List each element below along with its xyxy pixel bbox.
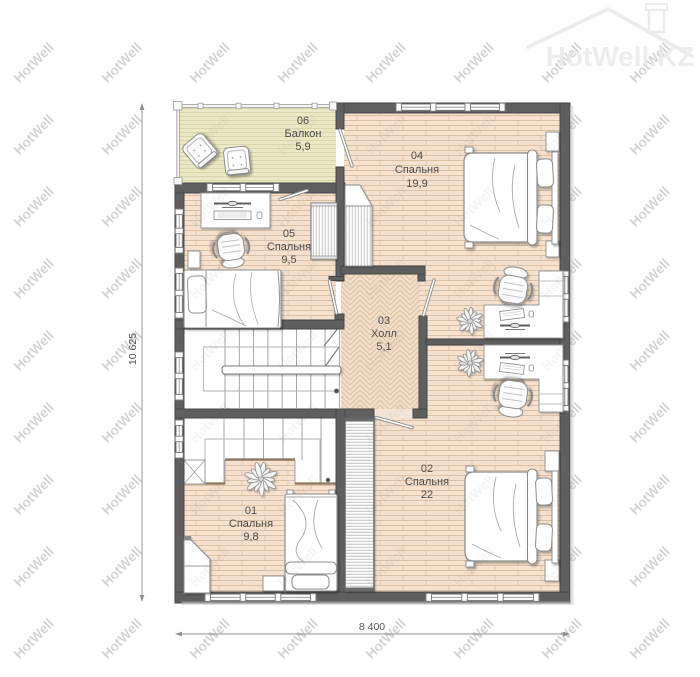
svg-text:9,8: 9,8 [243, 531, 258, 543]
svg-text:22: 22 [421, 489, 433, 501]
svg-text:HotWell: HotWell [11, 472, 57, 518]
svg-text:01: 01 [245, 505, 257, 517]
svg-text:HotWell: HotWell [275, 40, 321, 86]
svg-text:HotWell: HotWell [187, 40, 233, 86]
svg-text:HotWell: HotWell [11, 328, 57, 374]
svg-text:HotWell: HotWell [627, 112, 673, 158]
svg-text:HotWell: HotWell [627, 472, 673, 518]
svg-text:03: 03 [378, 315, 390, 327]
svg-text:HotWell: HotWell [627, 328, 673, 374]
svg-text:HotWell: HotWell [11, 40, 57, 86]
svg-text:HotWell: HotWell [627, 256, 673, 302]
svg-text:HotWell: HotWell [187, 616, 233, 662]
svg-text:HotWell: HotWell [11, 184, 57, 230]
svg-text:HotWell: HotWell [451, 40, 497, 86]
svg-text:HotWell: HotWell [627, 544, 673, 590]
svg-text:9,5: 9,5 [281, 254, 296, 266]
svg-text:Спальня: Спальня [229, 518, 273, 530]
svg-text:HotWell: HotWell [99, 472, 145, 518]
svg-text:HotWell: HotWell [627, 616, 673, 662]
svg-text:HotWell: HotWell [99, 40, 145, 86]
svg-text:HotWell: HotWell [11, 400, 57, 446]
svg-text:HotWell: HotWell [627, 400, 673, 446]
svg-text:Спальня: Спальня [267, 241, 311, 253]
svg-text:HotWell: HotWell [363, 40, 409, 86]
svg-text:Спальня: Спальня [395, 164, 439, 176]
svg-text:HotWell: HotWell [11, 616, 57, 662]
svg-text:HotWell: HotWell [99, 184, 145, 230]
svg-text:HotWell: HotWell [99, 544, 145, 590]
svg-text:HotWell: HotWell [99, 112, 145, 158]
svg-text:HotWell: HotWell [99, 616, 145, 662]
svg-text:HotWell: HotWell [627, 184, 673, 230]
svg-text:02: 02 [421, 463, 433, 475]
svg-text:HotWell: HotWell [11, 256, 57, 302]
svg-text:HotWell: HotWell [451, 616, 497, 662]
svg-text:8 400: 8 400 [359, 621, 385, 633]
svg-text:HotWell: HotWell [99, 256, 145, 302]
svg-text:HotWell: HotWell [539, 616, 585, 662]
svg-text:Спальня: Спальня [405, 476, 449, 488]
svg-text:04: 04 [411, 150, 423, 162]
svg-text:HotWell: HotWell [99, 400, 145, 446]
svg-text:HotWell: HotWell [11, 112, 57, 158]
svg-text:HotWell: HotWell [11, 544, 57, 590]
svg-text:HotWell: HotWell [275, 616, 321, 662]
svg-text:19,9: 19,9 [406, 178, 427, 190]
